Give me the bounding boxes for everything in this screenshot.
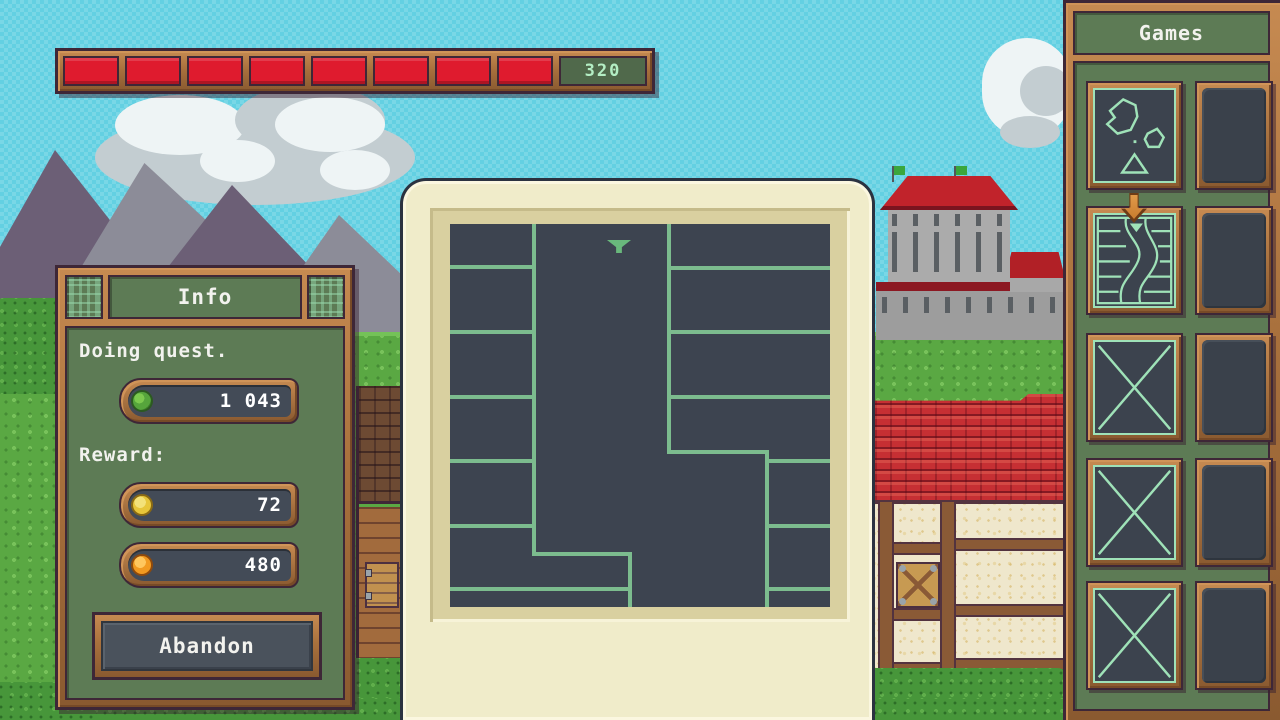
reward-bar: 72 <box>119 482 299 528</box>
games-panel-title: Games <box>1073 11 1270 55</box>
cloud <box>982 38 1072 148</box>
game-slot-4[interactable] <box>1195 458 1273 567</box>
health-segment <box>497 56 553 86</box>
maze-wall <box>765 587 830 591</box>
game-console: + 183 1.3X <box>400 178 875 720</box>
orange-coin-icon <box>131 554 153 576</box>
health-segment <box>125 56 181 86</box>
maze-wall <box>450 265 536 269</box>
house-right <box>862 386 1065 720</box>
reward-value: 72 <box>257 494 291 516</box>
quest-progress-bar: 1 043 <box>119 378 299 424</box>
maze-wall <box>765 450 769 607</box>
game-cartridge-3[interactable] <box>1086 333 1183 442</box>
health-segments <box>63 56 553 86</box>
maze-wall <box>667 224 671 454</box>
maze-wall <box>671 395 830 399</box>
health-segment <box>435 56 491 86</box>
maze-wall <box>450 330 536 334</box>
info-panel-title: Info <box>108 275 302 319</box>
house-left <box>356 386 402 720</box>
maze-wall <box>667 450 769 454</box>
game-cartridge-1[interactable] <box>1086 81 1183 190</box>
castle <box>876 164 1066 340</box>
game-slot-1[interactable] <box>1195 81 1273 190</box>
abandon-button[interactable]: Abandon <box>92 612 322 680</box>
health-segment <box>373 56 429 86</box>
gold-coin-icon <box>131 494 153 516</box>
empty-slot <box>1202 213 1266 308</box>
maze-wall <box>532 224 536 556</box>
maze-wall <box>450 395 536 399</box>
crossed-icon <box>1093 588 1176 683</box>
empty-slot <box>1202 340 1266 435</box>
empty-slot <box>1202 88 1266 183</box>
panel-corner-ornament <box>307 275 345 319</box>
reward-bar: 480 <box>119 542 299 588</box>
door <box>365 562 399 608</box>
game-screen: 320 Info Doing quest. 1 043 Reward: 72 <box>0 0 1280 720</box>
maze-wall <box>765 459 830 463</box>
empty-slot <box>1202 465 1266 560</box>
health-segment <box>187 56 243 86</box>
maze-screen <box>450 224 830 607</box>
player-ship-icon <box>607 240 631 253</box>
info-panel-body: Doing quest. 1 043 Reward: 72 480 <box>65 326 345 700</box>
health-bar: 320 <box>55 48 655 94</box>
maze-wall <box>628 552 632 607</box>
empty-slot <box>1202 588 1266 683</box>
health-segment <box>63 56 119 86</box>
reward-label: Reward: <box>79 444 166 466</box>
maze-wall <box>671 266 830 270</box>
asteroids-icon <box>1093 88 1176 183</box>
maze-wall <box>765 524 830 528</box>
game-cartridge-5[interactable] <box>1086 581 1183 690</box>
maze-wall <box>450 524 536 528</box>
crossed-icon <box>1093 465 1176 560</box>
info-panel: Info Doing quest. 1 043 Reward: 72 <box>55 265 355 710</box>
health-segment <box>311 56 367 86</box>
quest-progress-value: 1 043 <box>220 390 291 412</box>
quest-status-text: Doing quest. <box>79 340 228 362</box>
maze-wall <box>450 459 536 463</box>
yarn-ball-icon <box>131 390 153 412</box>
abandon-button-label: Abandon <box>101 621 313 671</box>
shutter <box>896 562 940 608</box>
game-slot-3[interactable] <box>1195 333 1273 442</box>
maze-wall <box>450 587 632 591</box>
maze-wall <box>671 330 830 334</box>
health-segment <box>249 56 305 86</box>
health-value-display: 320 <box>559 56 647 86</box>
maze-icon <box>1093 213 1176 308</box>
games-panel: Games <box>1063 0 1280 720</box>
panel-corner-ornament <box>65 275 103 319</box>
maze-wall <box>532 552 632 556</box>
reward-value: 480 <box>245 554 291 576</box>
game-cartridge-4[interactable] <box>1086 458 1183 567</box>
game-slot-5[interactable] <box>1195 581 1273 690</box>
crossed-icon <box>1093 340 1176 435</box>
game-slot-2[interactable] <box>1195 206 1273 315</box>
